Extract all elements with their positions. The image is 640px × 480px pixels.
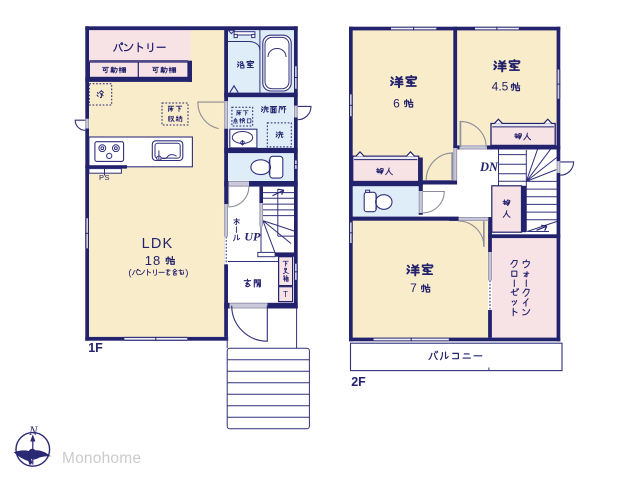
svg-text:7: 7 [410, 281, 417, 295]
svg-text:4.5: 4.5 [492, 80, 509, 94]
svg-text:PS: PS [99, 173, 110, 182]
svg-text:DN: DN [479, 160, 499, 174]
svg-text:Monohome: Monohome [62, 450, 141, 467]
svg-text:T: T [283, 290, 288, 299]
svg-text:): ) [185, 268, 188, 279]
svg-text:UP: UP [244, 230, 261, 244]
svg-text:2F: 2F [351, 375, 366, 389]
svg-text:6: 6 [393, 96, 400, 110]
svg-text:LDK: LDK [142, 236, 174, 252]
svg-text:1F: 1F [88, 341, 103, 355]
svg-text:18: 18 [145, 253, 161, 268]
